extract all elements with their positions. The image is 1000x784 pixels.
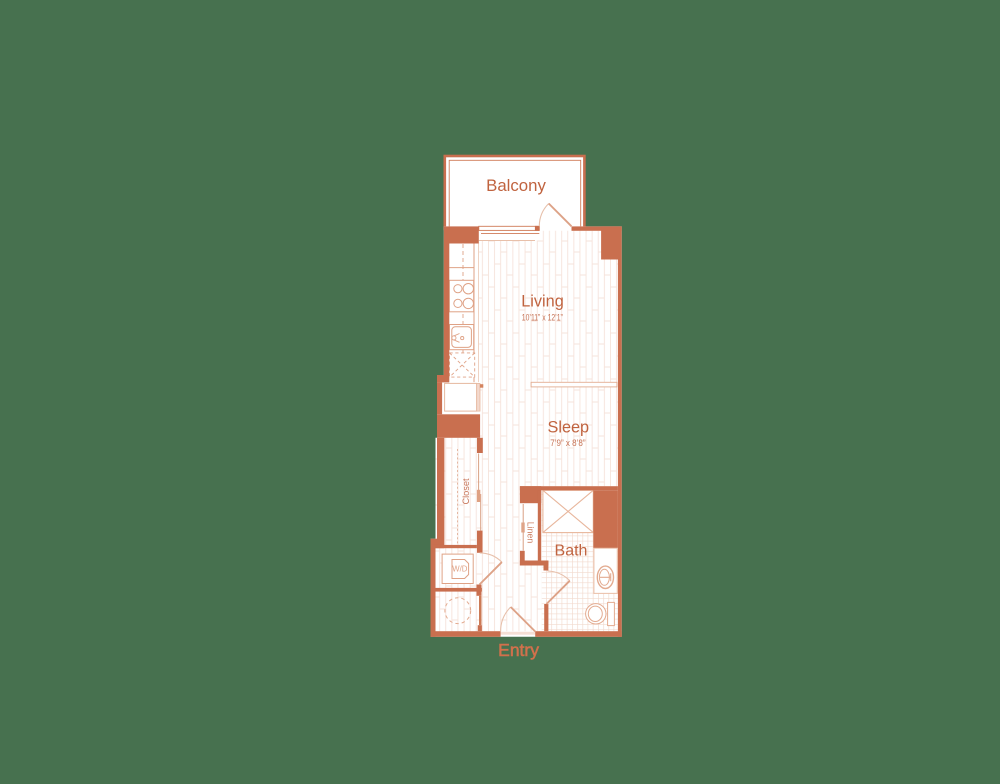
svg-text:Living: Living bbox=[521, 293, 564, 311]
svg-text:Sleep: Sleep bbox=[547, 418, 589, 436]
svg-text:Entry: Entry bbox=[498, 640, 539, 660]
svg-text:Closet: Closet bbox=[461, 478, 471, 504]
svg-text:Bath: Bath bbox=[555, 543, 588, 560]
svg-text:Linen: Linen bbox=[526, 522, 536, 544]
svg-text:10’11” x 12’1”: 10’11” x 12’1” bbox=[522, 313, 563, 324]
svg-text:7’9” x 8’8”: 7’9” x 8’8” bbox=[550, 438, 585, 448]
svg-text:Balcony: Balcony bbox=[486, 176, 546, 195]
svg-text:W/D: W/D bbox=[452, 565, 468, 574]
